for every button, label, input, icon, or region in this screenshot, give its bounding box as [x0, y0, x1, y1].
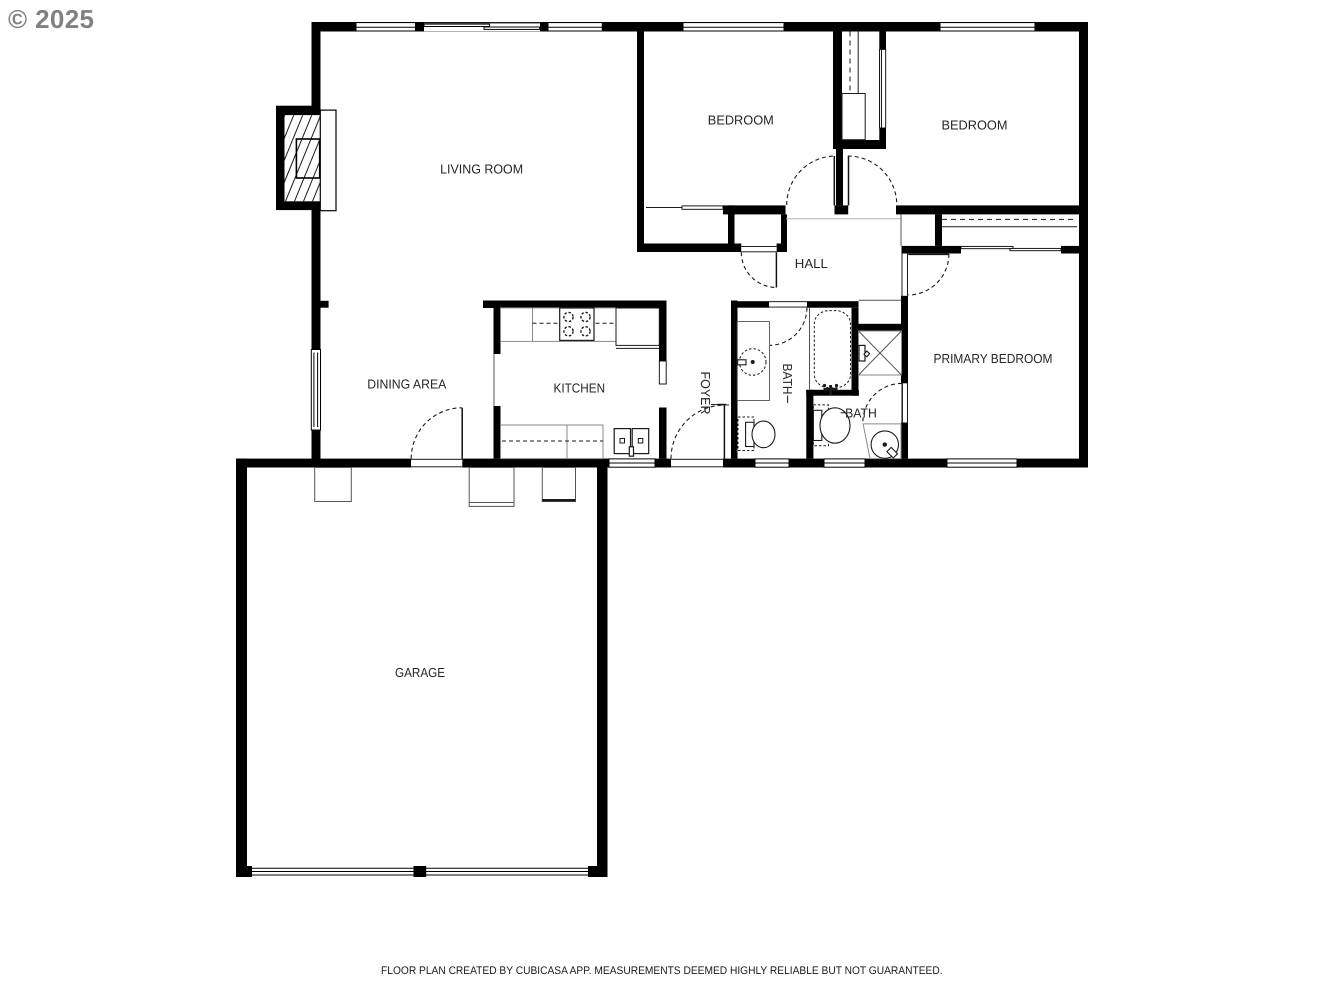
svg-text:PRIMARY BEDROOM: PRIMARY BEDROOM [934, 351, 1053, 366]
svg-text:BEDROOM: BEDROOM [942, 117, 1008, 132]
svg-text:BEDROOM: BEDROOM [708, 113, 774, 128]
svg-text:HALL: HALL [795, 256, 828, 271]
svg-text:GARAGE: GARAGE [395, 665, 445, 680]
svg-text:KITCHEN: KITCHEN [554, 381, 606, 396]
svg-text:BATH: BATH [780, 364, 795, 395]
svg-text:DINING AREA: DINING AREA [367, 377, 446, 392]
svg-text:FOYER: FOYER [698, 372, 713, 415]
svg-text:LIVING ROOM: LIVING ROOM [440, 162, 523, 177]
svg-text:FLOOR PLAN CREATED BY CUBICASA: FLOOR PLAN CREATED BY CUBICASA APP. MEAS… [381, 965, 943, 977]
svg-text:BATH: BATH [845, 406, 877, 421]
svg-text:© 2025: © 2025 [8, 4, 94, 34]
